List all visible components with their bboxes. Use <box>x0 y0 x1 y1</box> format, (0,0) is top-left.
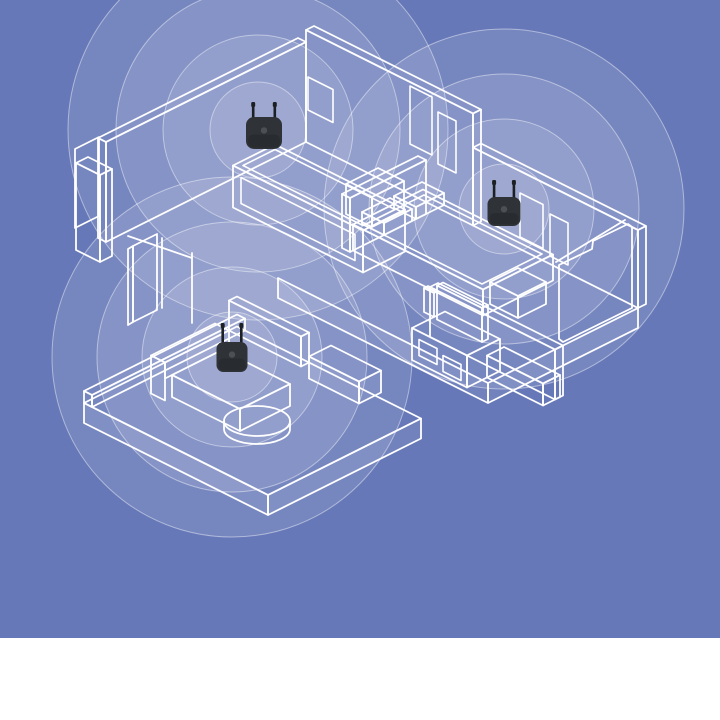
extender-body-shade <box>219 359 246 371</box>
extender-body-shade <box>248 135 280 148</box>
footer-band <box>0 638 720 720</box>
antenna-tip-icon <box>492 180 496 185</box>
antenna-tip-icon <box>273 102 277 107</box>
floorplan-svg <box>0 0 720 638</box>
product-illustration-canvas <box>0 0 720 720</box>
mi-logo-icon <box>229 351 235 357</box>
mi-logo-icon <box>261 127 267 133</box>
antenna-tip-icon <box>239 323 243 328</box>
floorplan-illustration <box>0 0 720 638</box>
antenna-tip-icon <box>512 180 516 185</box>
extender-body-shade <box>490 213 519 225</box>
antenna-tip-icon <box>251 102 255 107</box>
antenna-tip-icon <box>221 323 225 328</box>
mi-logo-icon <box>501 206 507 212</box>
